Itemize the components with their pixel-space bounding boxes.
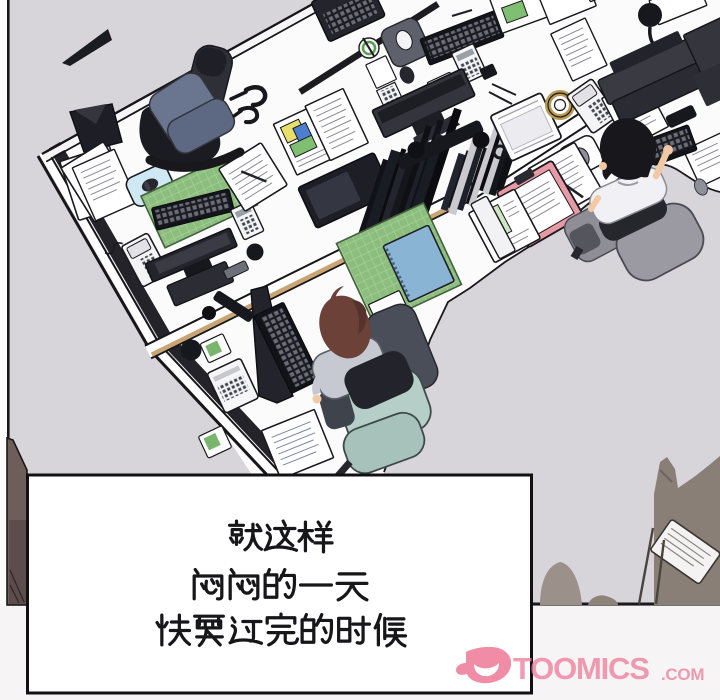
svg-text:.COM: .COM xyxy=(661,665,704,684)
svg-text:TOOMICS: TOOMICS xyxy=(513,651,649,686)
